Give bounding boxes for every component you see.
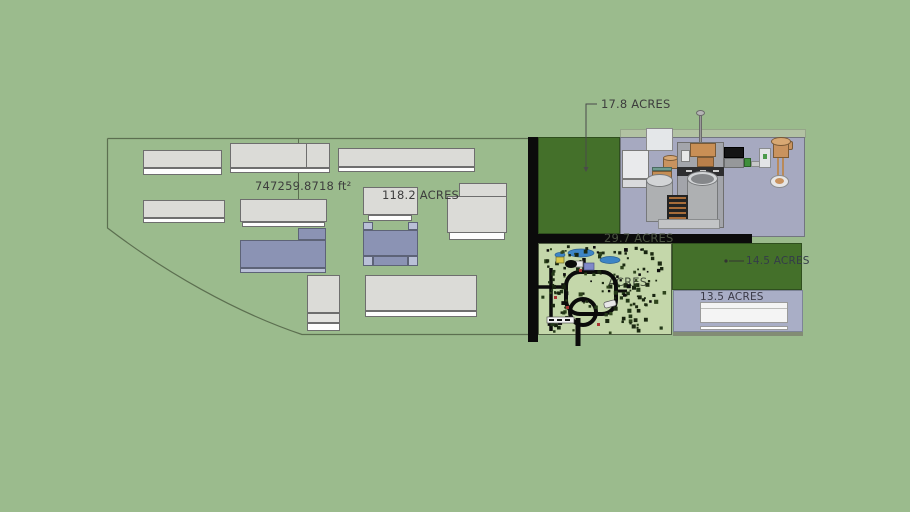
blue-building-west-tab xyxy=(298,228,326,240)
blue-building-tab xyxy=(363,256,373,266)
plant-white-building-annex xyxy=(622,179,649,188)
warehouse-building[interactable] xyxy=(230,143,330,168)
blue-building-tab xyxy=(363,222,373,230)
south-warehouse[interactable] xyxy=(365,275,477,311)
plant-conveyor-tick xyxy=(713,170,719,172)
label-14-5-acres: 14.5 ACRES xyxy=(746,256,810,267)
label-area-sqft: 747259.8718 ft² xyxy=(255,181,351,193)
l-shaped-building-base xyxy=(449,232,505,240)
plant-office-building[interactable] xyxy=(646,128,673,151)
label-17-8-acres: 17.8 ACRES xyxy=(601,99,671,111)
southeast-building-base xyxy=(700,326,788,330)
furnace-grate-dots xyxy=(669,197,686,219)
southeast-building[interactable] xyxy=(700,302,788,323)
center-building-connector xyxy=(368,215,412,221)
road-vertical-strip[interactable] xyxy=(528,137,538,342)
zone-landscape-park[interactable] xyxy=(538,243,672,335)
mixing-bowl-center xyxy=(775,178,784,184)
storage-tank-left-top xyxy=(646,174,673,187)
plant-white-building[interactable] xyxy=(622,150,649,179)
label-118-acres: 118.2 ACRES xyxy=(382,190,459,202)
storage-tank-right-basin xyxy=(691,174,714,184)
tall-building-base xyxy=(307,323,340,331)
blue-building-west[interactable] xyxy=(240,240,326,268)
south-warehouse-base xyxy=(365,311,477,317)
warehouse-building-base xyxy=(242,222,325,227)
model-viewport[interactable]: 747259.8718 ft² 118.2 ACRES 17.8 ACRES 2… xyxy=(0,0,910,512)
green-cube xyxy=(744,158,751,167)
plant-control-box xyxy=(681,150,690,162)
warehouse-building-base xyxy=(230,168,330,173)
plant-apron xyxy=(658,219,720,229)
plant-hopper-orange xyxy=(690,143,716,157)
l-shaped-building-top[interactable] xyxy=(459,183,507,197)
label-13-5-acres: 13.5 ACRES xyxy=(700,292,764,303)
warehouse-building-base xyxy=(338,167,475,172)
small-tan-tank-top xyxy=(663,155,678,161)
blue-building-center-south xyxy=(373,256,408,266)
blue-building-tab xyxy=(408,222,418,230)
tall-building[interactable] xyxy=(307,275,340,313)
warehouse-building[interactable] xyxy=(143,150,222,168)
warehouse-building-base xyxy=(143,168,222,175)
generator-cylinder xyxy=(724,158,744,168)
label-park-acres: ACRES xyxy=(608,277,647,289)
warehouse-building-base xyxy=(143,218,225,223)
blue-building-west-base xyxy=(240,268,326,273)
label-29-7-acres: 29.7 ACRES xyxy=(604,233,674,245)
warehouse-building[interactable] xyxy=(240,199,327,222)
zone-17-8-acres[interactable] xyxy=(538,137,620,234)
plant-hopper-orange-2 xyxy=(697,157,714,167)
tall-building-mid xyxy=(307,313,340,323)
blue-building-center[interactable] xyxy=(363,230,418,256)
tan-silo-top xyxy=(771,137,791,146)
southeast-building-roofline xyxy=(701,308,787,309)
control-panel-light xyxy=(763,154,767,159)
building-divider xyxy=(306,144,307,167)
warehouse-building[interactable] xyxy=(338,148,475,167)
zone-13-5-south-edge xyxy=(673,332,803,336)
plant-stack-cap xyxy=(696,110,705,116)
generator-black-box xyxy=(724,147,744,158)
warehouse-building[interactable] xyxy=(143,200,225,218)
blue-building-tab xyxy=(408,256,418,266)
plant-conveyor-tick xyxy=(686,170,692,172)
